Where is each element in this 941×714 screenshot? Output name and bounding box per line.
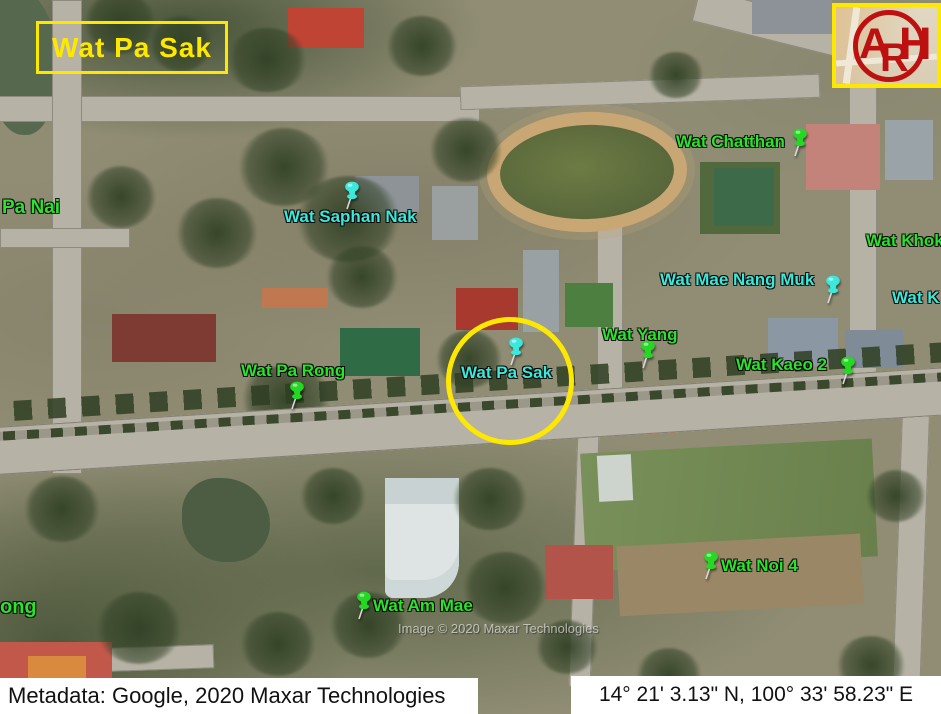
tree [96,592,182,664]
tree [386,16,458,76]
stadium-track [485,109,689,236]
placemark-label-wat-kaeo-2[interactable]: Wat Kaeo 2 [736,355,827,375]
placemark-label-wat-pa-rong[interactable]: Wat Pa Rong [241,361,345,381]
tree [300,468,366,524]
building [112,314,216,362]
placemark-label-wat-k[interactable]: Wat K [892,288,940,308]
building [752,0,832,34]
tree [240,612,316,676]
building [545,545,613,599]
stadium-field [498,122,675,222]
tree [226,28,308,92]
page-title: Wat Pa Sak [52,32,212,64]
coordinates-bar: 14° 21' 3.13" N, 100° 33' 58.23" E [571,676,941,714]
field [565,283,613,327]
building [340,328,420,376]
slide: Pa Nai Wat Saphan Nak Wat Chatthan Wat K… [0,0,941,714]
placemark-label-ong[interactable]: ong [0,596,37,619]
building [597,454,633,502]
pushpin-icon-wat-noi-4[interactable] [700,551,722,581]
pushpin-icon-wat-am-mae[interactable] [353,591,375,621]
tree [648,52,704,98]
building [885,120,933,180]
tree [430,118,502,182]
tree [866,470,926,522]
logo-letter-h: H [899,21,932,66]
placemark-label-wat-khok[interactable]: Wat Khok [866,231,941,251]
pond [182,478,270,562]
metadata-bar: Metadata: Google, 2020 Maxar Technologie… [0,678,478,714]
placemark-label-wat-saphan-nak[interactable]: Wat Saphan Nak [284,207,417,227]
imagery-watermark: Image © 2020 Maxar Technologies [398,621,599,636]
pushpin-icon-wat-kaeo-2[interactable] [837,356,859,386]
building [262,288,328,308]
building [385,478,459,598]
metadata-text: Metadata: Google, 2020 Maxar Technologie… [8,683,445,709]
placemark-label-pa-nai[interactable]: Pa Nai [2,197,60,219]
placemark-label-wat-yang[interactable]: Wat Yang [602,325,678,345]
pushpin-icon-wat-chatthan[interactable] [789,128,811,158]
building [432,186,478,240]
placemark-label-wat-pa-sak[interactable]: Wat Pa Sak [461,363,552,383]
building [714,168,774,226]
coordinates-text: 14° 21' 3.13" N, 100° 33' 58.23" E [599,683,913,707]
tree [462,552,548,624]
placemark-label-wat-am-mae[interactable]: Wat Am Mae [373,596,473,616]
tree [326,246,398,308]
tree [24,476,100,542]
tree [176,198,258,268]
tree [86,166,156,228]
road [460,74,821,111]
placemark-label-wat-chatthan[interactable]: Wat Chatthan [676,132,785,152]
title-box: Wat Pa Sak [36,21,228,74]
arh-logo: A R H [832,3,941,88]
placemark-label-wat-noi-4[interactable]: Wat Noi 4 [721,556,798,576]
pushpin-icon-wat-pa-rong[interactable] [286,381,308,411]
placemark-label-wat-mae-nang-muk[interactable]: Wat Mae Nang Muk [660,270,814,290]
building [806,124,880,190]
road [0,228,130,248]
pushpin-icon-wat-mae-nang-muk[interactable] [822,275,844,305]
tree [452,468,528,530]
